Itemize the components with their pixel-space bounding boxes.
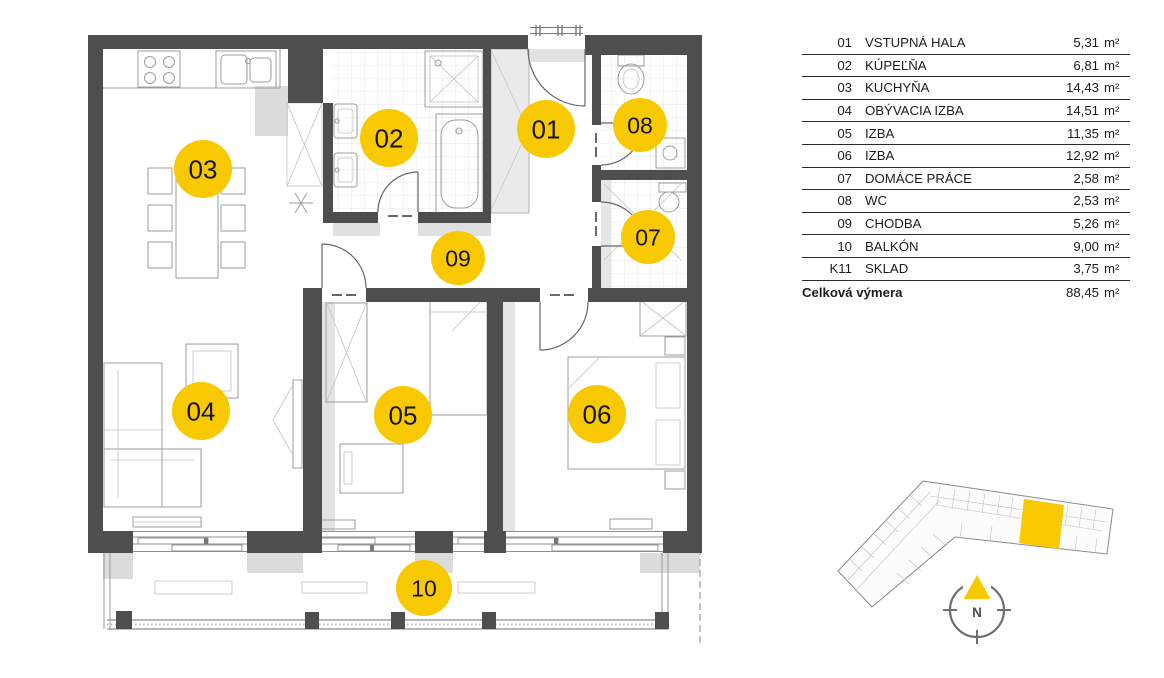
room-label-09: 09: [431, 231, 485, 285]
room-code: 10: [802, 239, 852, 254]
room-name: WC: [852, 193, 1055, 208]
legend-row: 06 IZBA 12,92 m²: [802, 145, 1130, 168]
room-area: 6,81: [1055, 58, 1099, 73]
room-name: VSTUPNÁ HALA: [852, 35, 1055, 50]
room-label-05: 05: [374, 386, 432, 444]
legend-row: 07 DOMÁCE PRÁCE 2,58 m²: [802, 168, 1130, 191]
svg-text:02: 02: [375, 123, 404, 153]
svg-text:03: 03: [189, 154, 218, 184]
svg-text:05: 05: [389, 400, 418, 430]
room-name: KÚPEĽŇA: [852, 58, 1055, 73]
area-unit: m²: [1099, 80, 1130, 95]
kitchen-counter: [103, 49, 280, 88]
room-label-06: 06: [568, 385, 626, 443]
area-unit: m²: [1099, 193, 1130, 208]
legend-row: 09 CHODBA 5,26 m²: [802, 213, 1130, 236]
room-area: 2,53: [1055, 193, 1099, 208]
radiator-icon: [610, 519, 652, 529]
area-unit: m²: [1099, 58, 1130, 73]
room-name: OBÝVACIA IZBA: [852, 103, 1055, 118]
svg-text:09: 09: [445, 245, 471, 271]
legend-rows: 01 VSTUPNÁ HALA 5,31 m² 02 KÚPEĽŇA 6,81 …: [802, 32, 1130, 281]
room-code: 07: [802, 171, 852, 186]
room-label-08: 08: [613, 98, 667, 152]
room-name: SKLAD: [852, 261, 1055, 276]
room-code: 09: [802, 216, 852, 231]
room-name: DOMÁCE PRÁCE: [852, 171, 1055, 186]
room-label-10: 10: [396, 560, 452, 616]
room-area: 5,26: [1055, 216, 1099, 231]
room-area: 9,00: [1055, 239, 1099, 254]
room-code: 08: [802, 193, 852, 208]
floorplan-sheet: 01 02 03 04 05 06 07 08 09 10 N: [0, 0, 1164, 678]
tv-board-icon: [293, 380, 302, 468]
window-band: [103, 532, 663, 552]
room-code: 03: [802, 80, 852, 95]
legend-row: K11 SKLAD 3,75 m²: [802, 258, 1130, 281]
room-name: IZBA: [852, 126, 1055, 141]
room-code: 06: [802, 148, 852, 163]
total-label: Celková výmera: [802, 285, 1055, 300]
room-area: 14,43: [1055, 80, 1099, 95]
legend-row: 08 WC 2,53 m²: [802, 190, 1130, 213]
room-area: 14,51: [1055, 103, 1099, 118]
legend-row: 10 BALKÓN 9,00 m²: [802, 235, 1130, 258]
room-area: 5,31: [1055, 35, 1099, 50]
room-name: CHODBA: [852, 216, 1055, 231]
room-code: 02: [802, 58, 852, 73]
room-area: 3,75: [1055, 261, 1099, 276]
room-area: 12,92: [1055, 148, 1099, 163]
area-unit: m²: [1099, 103, 1130, 118]
room-label-02: 02: [360, 109, 418, 167]
room-label-03: 03: [174, 140, 232, 198]
area-unit: m²: [1099, 261, 1130, 276]
svg-text:07: 07: [635, 224, 661, 250]
area-unit: m²: [1099, 171, 1130, 186]
room-code: 05: [802, 126, 852, 141]
total-area: 88,45: [1055, 285, 1099, 300]
legend-row: 04 OBÝVACIA IZBA 14,51 m²: [802, 100, 1130, 123]
svg-text:08: 08: [627, 112, 653, 138]
area-unit: m²: [1099, 216, 1130, 231]
room-code: K11: [802, 261, 852, 276]
area-unit: m²: [1099, 285, 1130, 300]
svg-text:10: 10: [411, 575, 437, 601]
room-area: 2,58: [1055, 171, 1099, 186]
highlighted-unit: [1019, 499, 1064, 549]
svg-text:01: 01: [532, 114, 561, 144]
area-unit: m²: [1099, 148, 1130, 163]
legend-row: 01 VSTUPNÁ HALA 5,31 m²: [802, 32, 1130, 55]
legend-row: 05 IZBA 11,35 m²: [802, 122, 1130, 145]
room-code: 04: [802, 103, 852, 118]
room-label-04: 04: [172, 382, 230, 440]
room-label-07: 07: [621, 210, 675, 264]
legend-row: 03 KUCHYŇA 14,43 m²: [802, 77, 1130, 100]
area-unit: m²: [1099, 239, 1130, 254]
area-legend: 01 VSTUPNÁ HALA 5,31 m² 02 KÚPEĽŇA 6,81 …: [802, 32, 1130, 304]
room-area: 11,35: [1055, 126, 1099, 141]
sofa-icon: [104, 363, 162, 507]
room-name: IZBA: [852, 148, 1055, 163]
shaft: [287, 103, 322, 213]
room-label-01: 01: [517, 100, 575, 158]
boiler-icon: [289, 193, 313, 213]
area-unit: m²: [1099, 126, 1130, 141]
compass: N: [943, 575, 1011, 644]
north-label: N: [972, 605, 982, 620]
svg-text:04: 04: [187, 396, 216, 426]
room-code: 01: [802, 35, 852, 50]
desk-icon: [340, 444, 403, 493]
legend-total-row: Celková výmera 88,45 m²: [802, 281, 1130, 304]
room-name: BALKÓN: [852, 239, 1055, 254]
svg-text:06: 06: [583, 399, 612, 429]
legend-row: 02 KÚPEĽŇA 6,81 m²: [802, 55, 1130, 78]
entrance-threshold: [530, 25, 583, 36]
area-unit: m²: [1099, 35, 1130, 50]
room-name: KUCHYŇA: [852, 80, 1055, 95]
